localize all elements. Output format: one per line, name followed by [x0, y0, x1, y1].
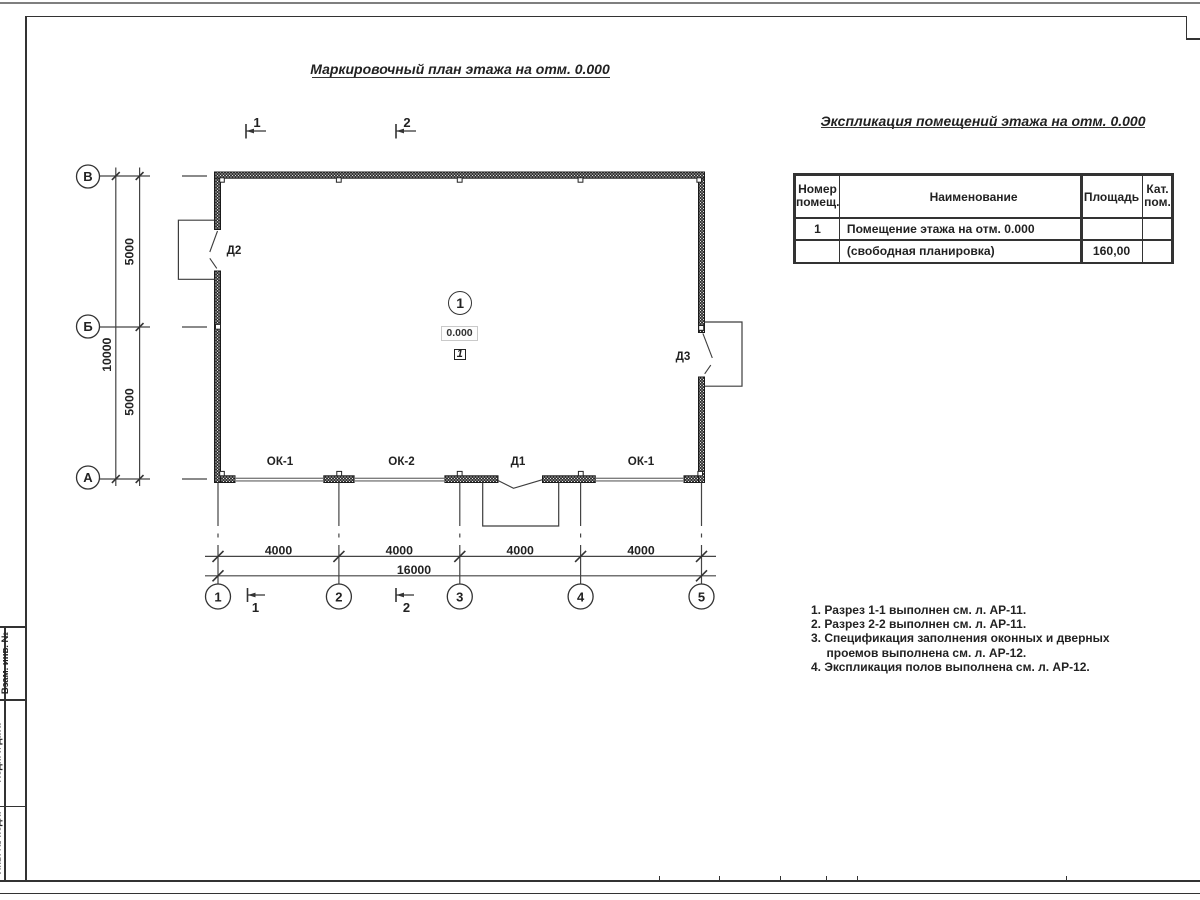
svg-text:4: 4: [577, 590, 585, 605]
svg-text:А: А: [83, 470, 93, 485]
svg-text:1: 1: [253, 115, 260, 130]
svg-text:16000: 16000: [397, 563, 431, 577]
svg-text:2: 2: [403, 600, 410, 615]
svg-text:3: 3: [456, 590, 463, 605]
svg-text:4000: 4000: [386, 543, 414, 557]
svg-text:5: 5: [698, 590, 705, 605]
svg-text:5000: 5000: [123, 388, 137, 416]
svg-text:10000: 10000: [100, 337, 114, 371]
svg-text:4000: 4000: [265, 543, 293, 557]
svg-text:4000: 4000: [507, 543, 535, 557]
svg-text:В: В: [83, 169, 92, 184]
svg-text:5000: 5000: [123, 238, 137, 266]
svg-text:Б: Б: [83, 319, 92, 334]
svg-text:2: 2: [335, 590, 342, 605]
svg-text:4000: 4000: [627, 543, 655, 557]
svg-text:1: 1: [252, 600, 259, 615]
svg-text:1: 1: [214, 590, 221, 605]
svg-text:2: 2: [403, 115, 410, 130]
